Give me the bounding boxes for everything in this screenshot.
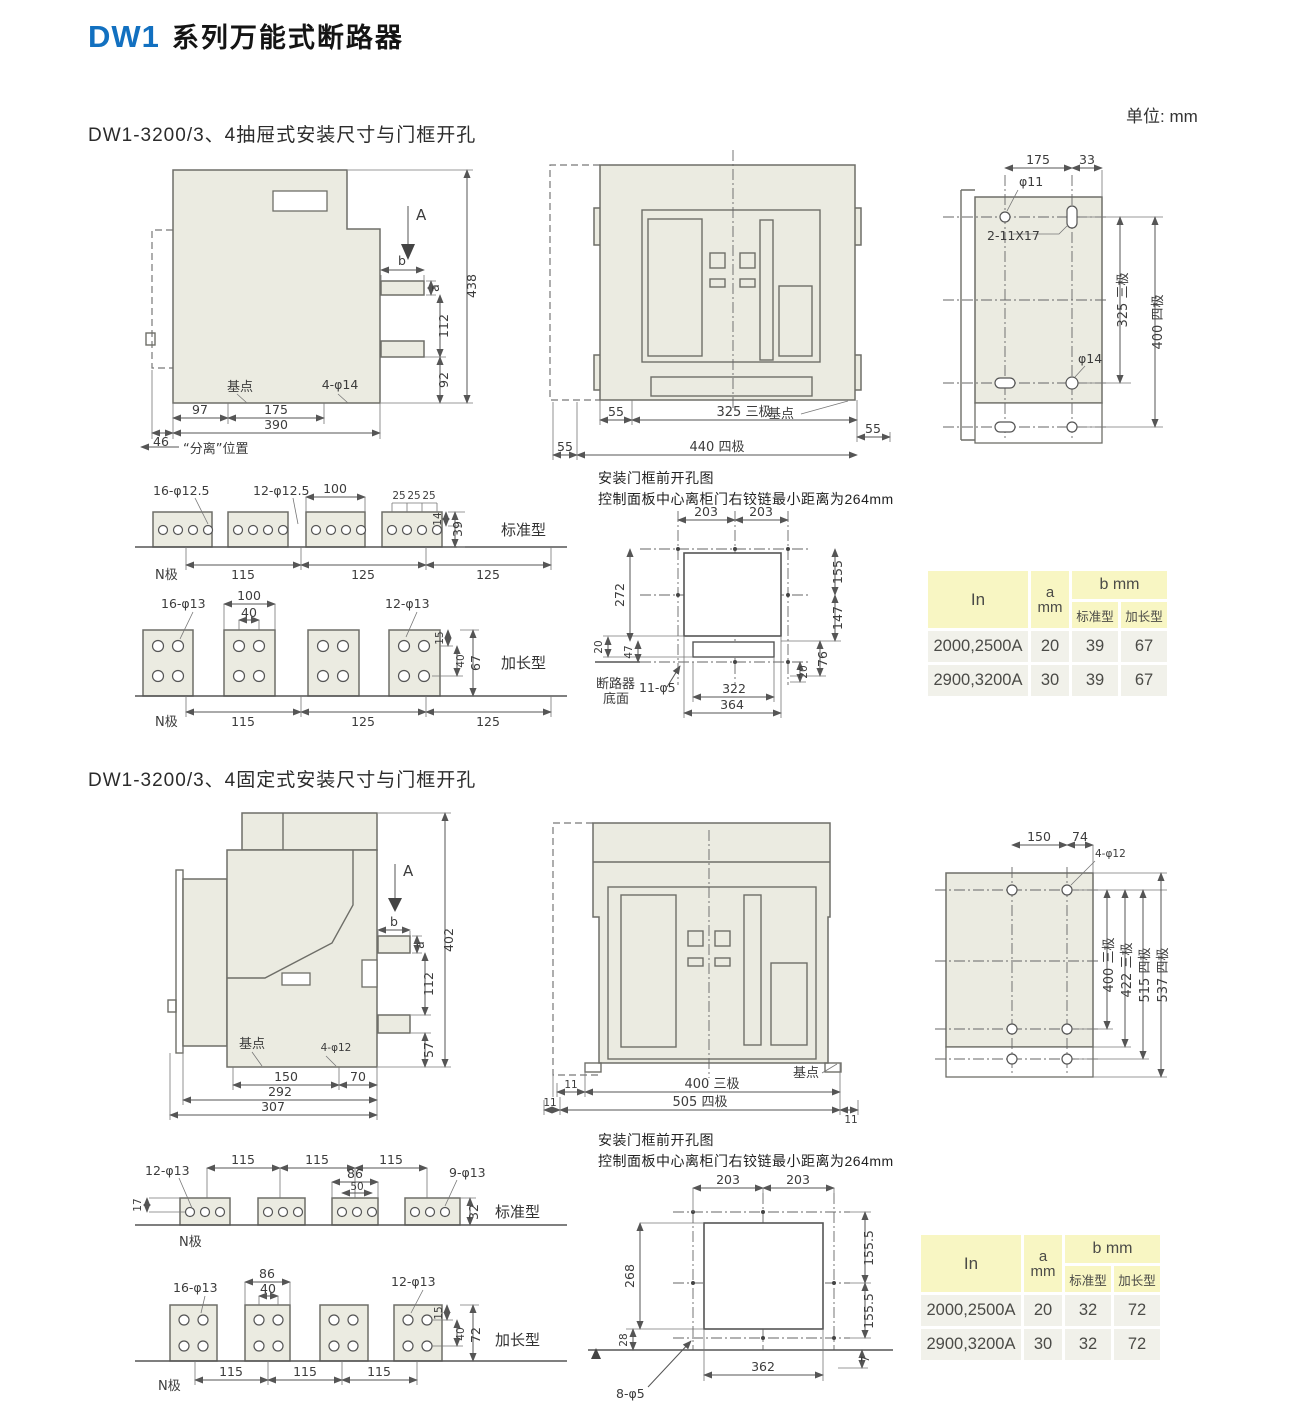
extended-type-label: 加长型 [495,1331,540,1349]
dim-11c: 11 [844,1114,857,1126]
unit-label: 单位: mm [1126,102,1198,127]
s2-side-view-drawing: A b a 402 112 57 基点 4-φ12 150 70 292 307 [140,800,535,1135]
holes-n-label: 16-φ12.5 [153,483,210,498]
cell-in: 2000,2500A [928,631,1028,662]
col-b: b mm [1065,1235,1160,1263]
page-title: DW1系列万能式断路器 [88,16,404,55]
col-in: In [928,571,1028,628]
cell-a: 20 [1031,631,1069,662]
cell-a: 20 [1024,1295,1062,1326]
col-extended: 加长型 [1121,602,1167,628]
dim-115a: 115 [231,1152,255,1167]
dim-438: 438 [464,274,479,298]
dim-86: 86 [259,1266,275,1281]
dim-400-3pole: 400 三极 [685,1077,740,1092]
base-point-label: 基点 [768,407,794,422]
dim-115: 115 [231,567,255,582]
cell-b-std: 32 [1065,1295,1111,1326]
dim-86: 86 [347,1166,363,1181]
s1-busbar-extended-drawing: 16-φ13 100 40 12-φ13 15 40 67 加长型 N极 115… [135,592,570,732]
dim-155-5a: 155.5 [861,1230,876,1266]
col-a-line2: mm [1025,1264,1061,1279]
dim-400-3pole: 400 三极 [1102,938,1117,993]
s2-busbar-standard-drawing: 115 115 115 86 50 12-φ13 17 9-φ13 32 标准型… [135,1148,570,1263]
holes-p-label: 9-φ13 [449,1165,486,1180]
dim-203a: 203 [716,1172,740,1187]
dim-25a: 25 [392,490,405,502]
dim-325-3pole: 325 三极 [717,405,772,420]
dim-11a: 11 [564,1079,577,1091]
dim-76: 76 [815,651,830,667]
col-in: In [921,1235,1021,1292]
s2-table: In a mm b mm 标准型 加长型 2000,2500A 20 32 72… [918,1232,1163,1363]
dim-115c: 115 [379,1152,403,1167]
dim-505-4pole: 505 四极 [673,1095,728,1110]
dim-a: a [427,284,442,292]
dim-115c: 115 [367,1364,391,1379]
dim-115b: 115 [305,1152,329,1167]
dim-47: 47 [623,645,635,658]
dim-7: 7 [860,1356,872,1363]
slot-label: 2-11X17 [987,228,1040,243]
col-b: b mm [1072,571,1167,599]
dim-15: 15 [434,631,446,644]
dim-17: 17 [132,1198,144,1211]
cell-b-ext: 67 [1121,665,1167,696]
dim-155-5b: 155.5 [861,1293,876,1329]
dim-20-left: 20 [593,640,605,653]
s1-mounting-plate-drawing: 175 33 φ11 2-11X17 φ14 325 三极 400 四极 [935,145,1225,475]
s1-side-shapes [146,170,424,403]
s1-door-note: 安装门框前开孔图 控制面板中心离柜门右铰链最小距离为264mm [598,468,894,510]
dim-70: 70 [350,1069,366,1084]
holes-label: 4-φ12 [321,1042,352,1054]
dim-440-4pole: 440 四极 [690,440,745,455]
dim-307: 307 [261,1099,285,1114]
n-pole-label: N极 [155,715,178,730]
catalog-page: DW1系列万能式断路器 单位: mm DW1-3200/3、4抽屉式安装尺寸与门… [0,0,1300,1412]
dim-74: 74 [1072,829,1088,844]
dim-422-3pole: 422 三极 [1120,943,1135,998]
brand-label: DW1 [88,19,160,54]
s1-plate-shapes [943,175,1107,443]
dim-28: 28 [618,1333,630,1346]
dim-46: 46 [153,434,169,449]
page-title-text: 系列万能式断路器 [172,23,404,53]
hole-phi11-label: φ11 [1019,174,1043,189]
dim-40: 40 [241,605,257,620]
dim-364: 364 [720,697,744,712]
holes-label: 4-φ14 [322,377,359,392]
dim-40v: 40 [455,654,467,667]
col-standard: 标准型 [1065,1266,1111,1292]
col-a-line1: a [1025,1249,1061,1264]
dim-25b: 25 [407,490,420,502]
cell-in: 2000,2500A [921,1295,1021,1326]
cell-b-std: 39 [1072,665,1118,696]
bottom-face-label: 底面 [603,691,629,707]
n-pole-label: N极 [155,568,178,583]
dim-100: 100 [323,481,347,496]
table-row: 2000,2500A 20 39 67 [928,631,1167,662]
dim-b: b [390,914,398,929]
holes-p-label: 12-φ13 [391,1274,436,1289]
section1-heading: DW1-3200/3、4抽屉式安装尺寸与门框开孔 [88,120,476,147]
dim-115a: 115 [219,1364,243,1379]
holes-label: 4-φ12 [1095,848,1126,860]
dim-55-far: 55 [557,439,573,454]
holes-n-label: 16-φ13 [173,1280,218,1295]
dim-14: 14 [432,512,444,526]
dim-362: 362 [751,1359,775,1374]
dim-112: 112 [421,972,436,996]
breaker-label: 断路器 [596,676,635,692]
s2-front-view-drawing: 11 400 三极 11 505 四极 11 基点 [530,800,925,1160]
holes-n-label: 12-φ13 [145,1163,190,1178]
col-a-line2: mm [1032,600,1068,615]
dim-390: 390 [264,417,288,432]
s2-door-cutout-drawing: 203 203 268 28 155.5 155.5 7 362 8-φ5 [588,1168,930,1412]
col-a: a mm [1031,571,1069,628]
base-point-label: 基点 [793,1066,819,1081]
dim-67: 67 [468,655,483,671]
dim-155: 155 [830,560,845,584]
col-a-line1: a [1032,585,1068,600]
view-arrow-label: A [403,862,414,880]
dim-11b: 11 [543,1097,556,1109]
col-standard: 标准型 [1072,602,1118,628]
dim-537-4pole: 537 四极 [1156,948,1171,1003]
dim-515-4pole: 515 四极 [1138,948,1153,1003]
s2-front-shapes [553,823,841,1078]
dim-203a: 203 [694,504,718,519]
s2-door-note-line1: 安装门框前开孔图 [598,1130,894,1151]
dim-268: 268 [622,1264,637,1288]
n-pole-label: N极 [158,1379,181,1394]
holes-n-label: 16-φ13 [161,596,206,611]
table-row: 2000,2500A 20 32 72 [921,1295,1160,1326]
holes-label: 11-φ5 [639,680,676,695]
dim-325-3pole: 325 三极 [1116,273,1131,328]
base-point-label: 基点 [239,1037,265,1052]
section2-heading: DW1-3200/3、4固定式安装尺寸与门框开孔 [88,765,476,792]
dim-292: 292 [268,1084,292,1099]
dim-40v: 40 [455,1327,467,1340]
s1-table: In a mm b mm 标准型 加长型 2000,2500A 20 39 67… [925,568,1170,699]
base-point-label: 基点 [227,380,253,395]
dim-b: b [398,253,406,268]
dim-20-right: 20 [798,665,810,678]
dim-32: 32 [466,1204,481,1220]
dim-25c: 25 [422,490,435,502]
cell-in: 2900,3200A [921,1329,1021,1360]
dim-125b: 125 [476,714,500,729]
s1-busbar-standard-drawing: 16-φ12.5 12-φ12.5 100 25 25 25 14 39 标准型… [135,482,570,587]
cell-b-ext: 72 [1114,1329,1160,1360]
cell-a: 30 [1024,1329,1062,1360]
dim-203b: 203 [749,504,773,519]
dim-150: 150 [1027,829,1051,844]
dim-125a: 125 [351,567,375,582]
dim-72: 72 [468,1327,483,1343]
n-pole-label: N极 [179,1235,202,1250]
cell-b-std: 39 [1072,631,1118,662]
dim-322: 322 [722,681,746,696]
dim-125b: 125 [476,567,500,582]
extended-type-label: 加长型 [501,654,546,672]
s1-door-cutout-drawing: 203 203 272 20 47 155 147 76 20 322 364 … [595,505,925,745]
s2-mounting-plate-drawing: 150 74 4-φ12 400 三极 422 三极 515 四极 537 四极 [935,815,1225,1115]
col-a: a mm [1024,1235,1062,1292]
dim-125a: 125 [351,714,375,729]
standard-type-label: 标准型 [495,1203,540,1221]
dim-175: 175 [1026,152,1050,167]
s1-front-view-drawing: 55 325 三极 55 55 440 四极 基点 [545,150,925,500]
dim-15: 15 [433,1306,445,1319]
s2-side-shapes [168,813,410,1067]
holes-p-label: 12-φ12.5 [253,483,310,498]
view-arrow-label: A [416,206,427,224]
s2-busbar-extended-drawing: 86 40 16-φ13 12-φ13 15 40 72 加长型 115 115… [135,1268,570,1410]
s1-door-note-line1: 安装门框前开孔图 [598,468,894,489]
dim-50: 50 [350,1181,363,1193]
dim-112: 112 [436,314,451,338]
dim-92: 92 [436,372,451,388]
dim-100: 100 [237,588,261,603]
dim-a: a [412,941,427,949]
cell-b-ext: 67 [1121,631,1167,662]
dim-400-4pole: 400 四极 [1151,295,1166,350]
dim-115: 115 [231,714,255,729]
dim-40: 40 [260,1281,276,1296]
table-row: 2900,3200A 30 32 72 [921,1329,1160,1360]
col-extended: 加长型 [1114,1266,1160,1292]
dim-175: 175 [264,402,288,417]
dim-57: 57 [421,1042,436,1058]
holes-label: 8-φ5 [616,1386,645,1401]
hole-phi14-label: φ14 [1078,351,1102,366]
s1-front-shapes [550,150,861,408]
separate-position-label: “分离”位置 [183,441,248,457]
dim-272: 272 [612,583,627,607]
s2-door-note: 安装门框前开孔图 控制面板中心离柜门右铰链最小距离为264mm [598,1130,894,1172]
dim-55-left: 55 [608,404,624,419]
cell-b-ext: 72 [1114,1295,1160,1326]
dim-150: 150 [274,1069,298,1084]
holes-p-label: 12-φ13 [385,596,430,611]
dim-402: 402 [441,928,456,952]
standard-type-label: 标准型 [501,521,546,539]
dim-147: 147 [830,606,845,630]
s2-plate-shapes [935,867,1100,1077]
cell-b-std: 32 [1065,1329,1111,1360]
s1-side-view-drawing: A b a 438 112 92 基点 4-φ14 97 175 390 46 … [135,148,540,483]
cell-in: 2900,3200A [928,665,1028,696]
dim-115b: 115 [293,1364,317,1379]
dim-33: 33 [1079,152,1095,167]
dim-97: 97 [192,402,208,417]
dim-203b: 203 [786,1172,810,1187]
dim-55-right: 55 [865,421,881,436]
dim-39: 39 [450,521,465,537]
table-row: 2900,3200A 30 39 67 [928,665,1167,696]
cell-a: 30 [1031,665,1069,696]
